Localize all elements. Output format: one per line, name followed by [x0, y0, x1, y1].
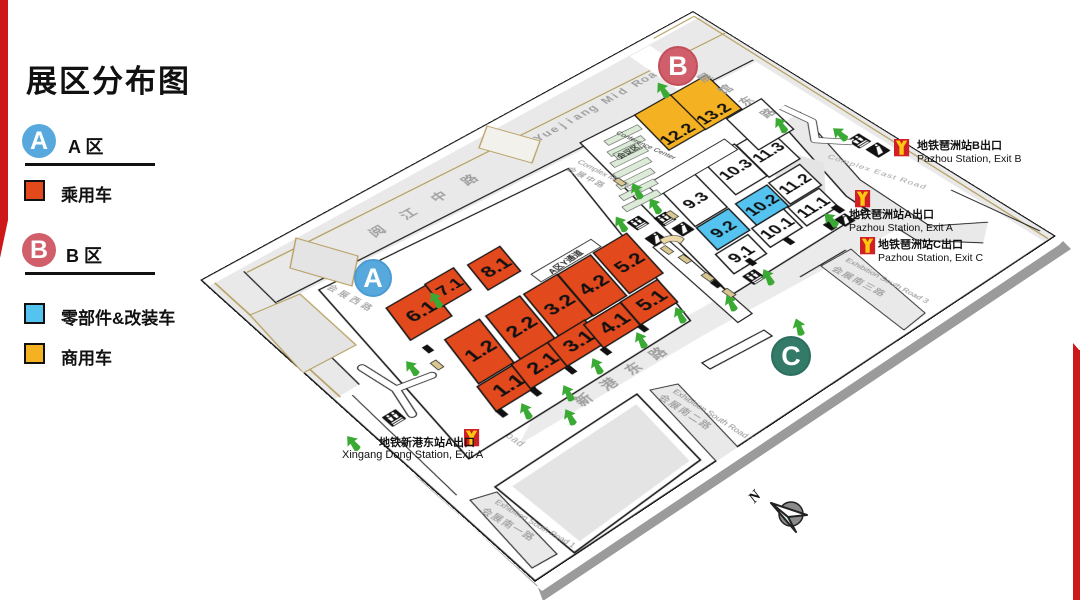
svg-text:地铁琶洲站C出口: 地铁琶洲站C出口 — [878, 237, 963, 251]
svg-text:C: C — [781, 341, 801, 371]
svg-text:A: A — [363, 263, 383, 293]
svg-text:Pazhou Station, Exit C: Pazhou Station, Exit C — [878, 252, 983, 264]
svg-text:地铁新港东站A出口: 地铁新港东站A出口 — [379, 435, 475, 449]
svg-text:B: B — [668, 51, 688, 81]
svg-text:Pazhou Station, Exit B: Pazhou Station, Exit B — [917, 153, 1021, 165]
svg-text:Pazhou Station, Exit A: Pazhou Station, Exit A — [849, 222, 953, 234]
svg-text:地铁琶洲站B出口: 地铁琶洲站B出口 — [917, 138, 1002, 152]
svg-text:Xingang Dong Station, Exit A: Xingang Dong Station, Exit A — [342, 449, 484, 461]
svg-text:地铁琶洲站A出口: 地铁琶洲站A出口 — [849, 207, 934, 221]
svg-text:N: N — [745, 487, 766, 507]
